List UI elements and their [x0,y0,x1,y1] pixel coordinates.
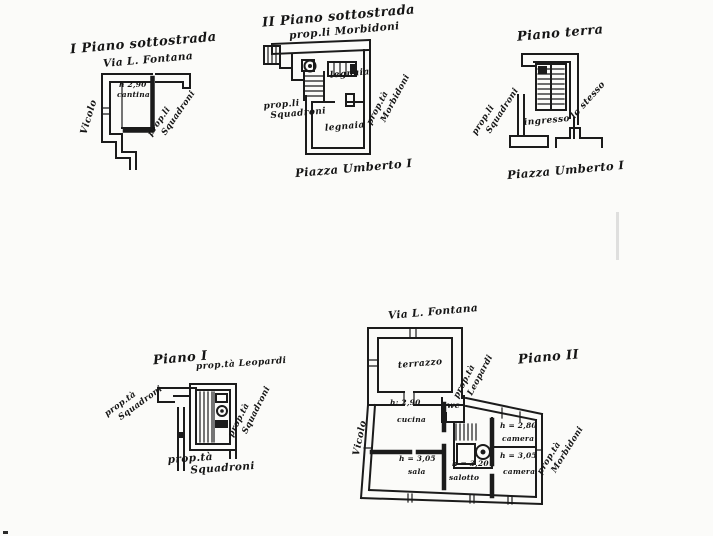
wc-label: wc [447,402,460,411]
scan-speck [3,531,8,534]
camera2-height-label: h = 3,05 [500,452,537,460]
scanned-floor-plans-page: I Piano sottostrada Via L. Fontana h 2,9… [0,0,713,536]
camera1-label: camera [502,435,534,443]
salotto-label: salotto [449,474,479,482]
sala-height-label: h = 3,05 [399,455,436,463]
cucina-height-label: h: 2,90 [390,399,421,407]
camera2-label: camera [503,468,535,476]
cucina-label: cucina [397,416,426,424]
plan5-drawing [352,318,564,516]
salotto-height-label: h = 3,20 [452,460,489,468]
scan-smudge [616,212,619,260]
plan-second-floor: Via L. Fontana Piano II terrazzo [0,0,713,536]
sala-label: sala [408,468,426,476]
camera1-height-label: h = 2,80 [500,422,537,430]
